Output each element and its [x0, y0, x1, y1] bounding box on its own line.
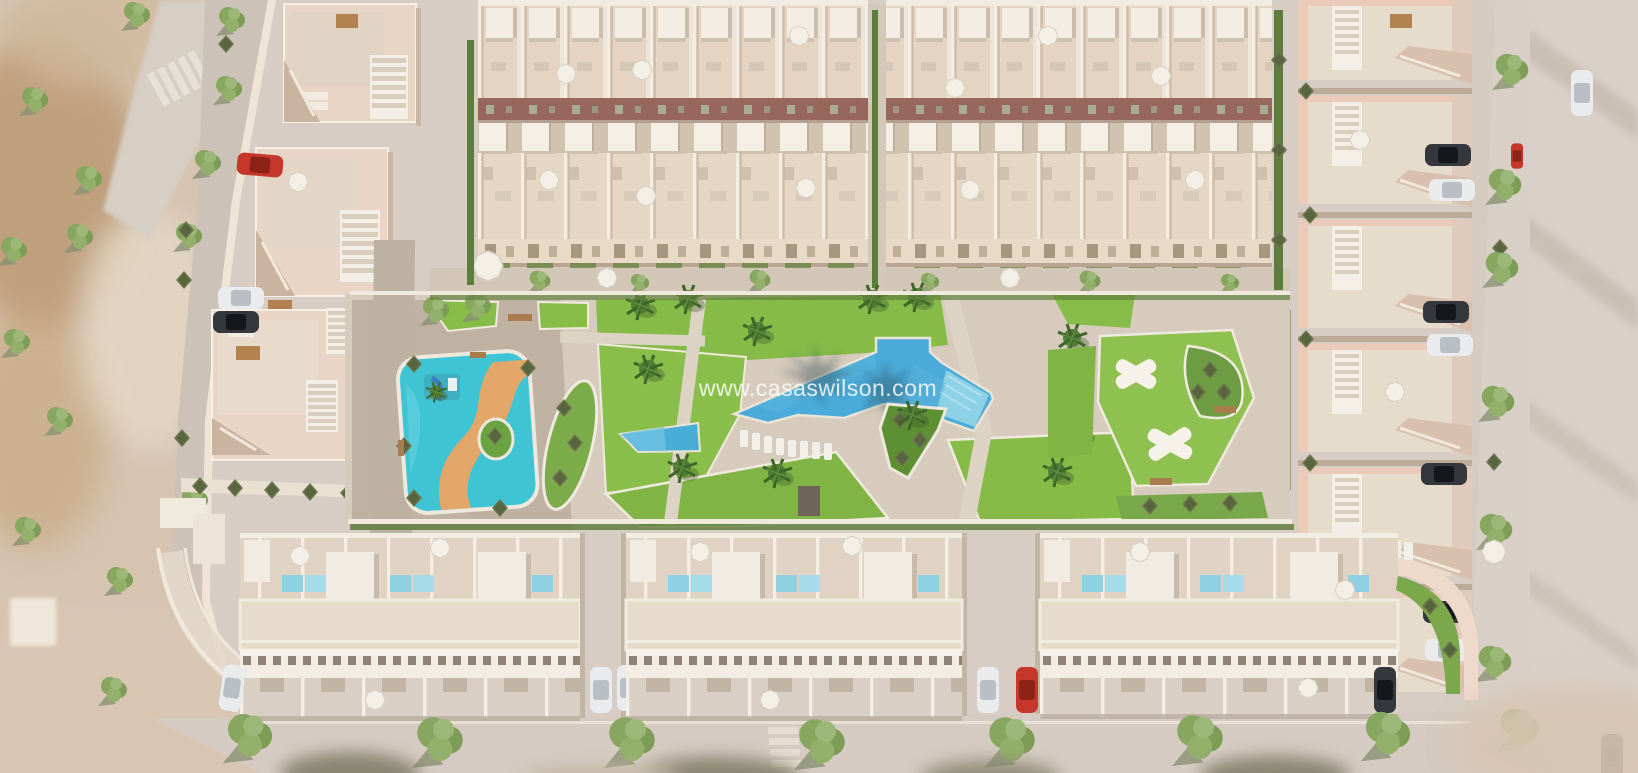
- svg-text:www.casaswilson.com: www.casaswilson.com: [698, 375, 937, 401]
